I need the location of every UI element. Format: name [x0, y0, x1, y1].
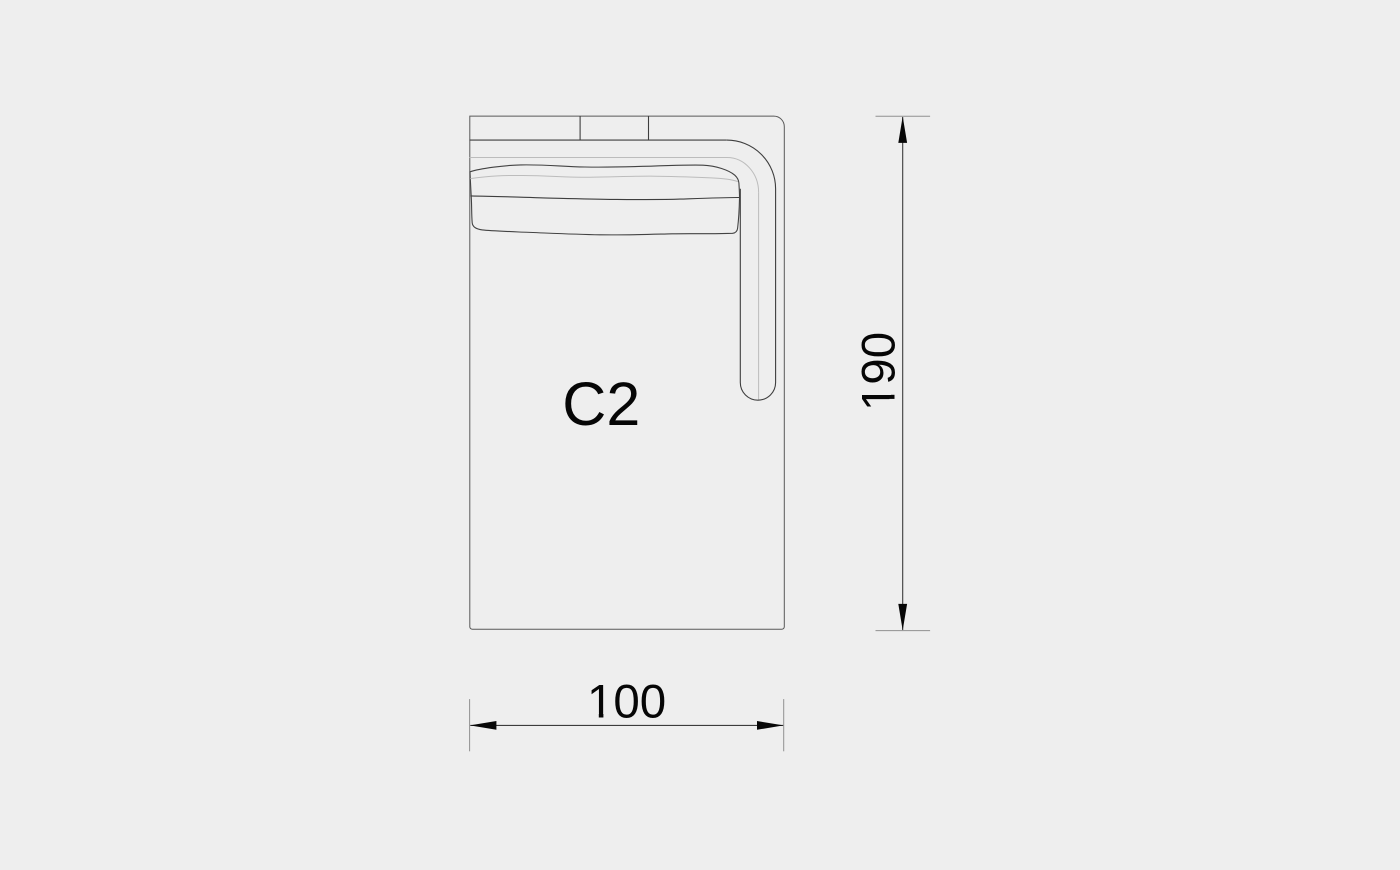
svg-text:100: 100 — [587, 676, 666, 729]
svg-text:190: 190 — [852, 332, 905, 411]
svg-text:C2: C2 — [562, 370, 640, 438]
